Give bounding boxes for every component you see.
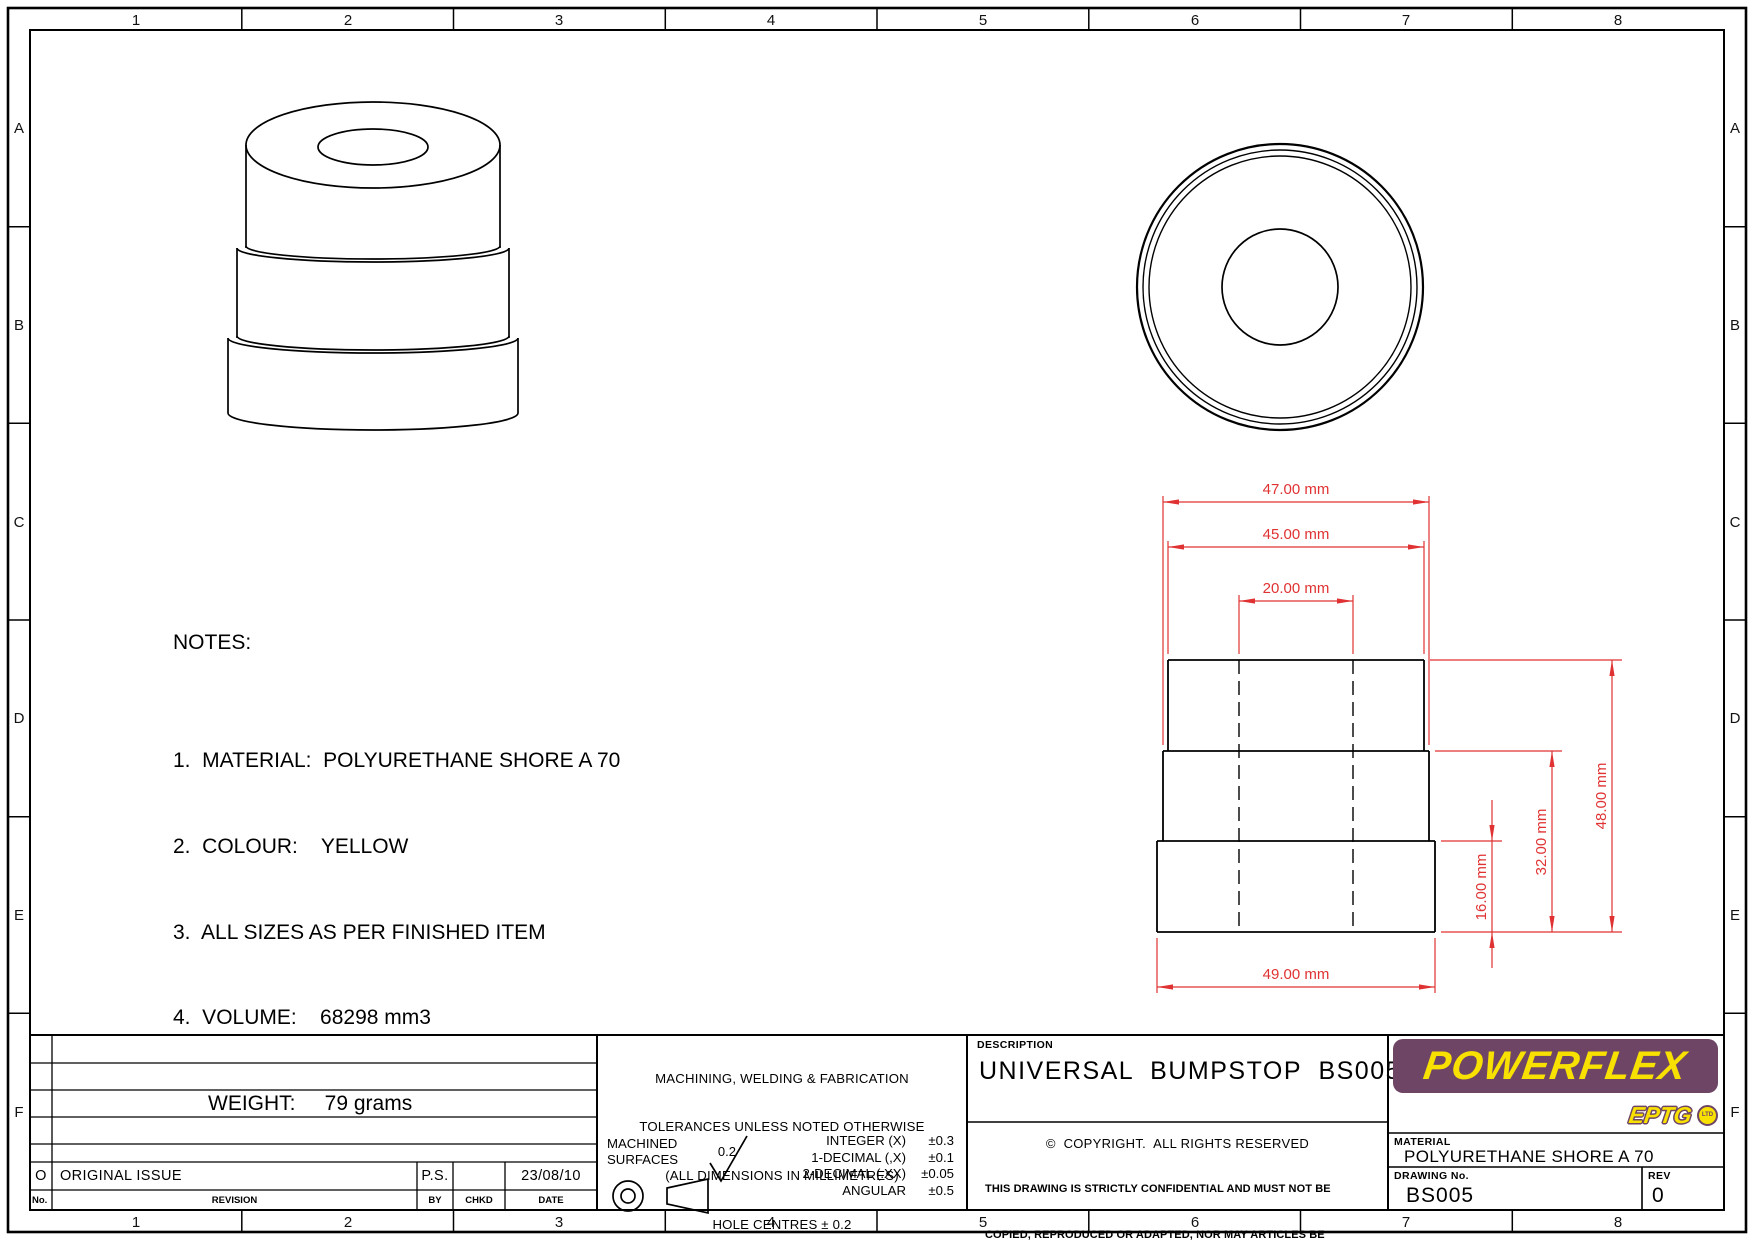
tolerance-line: HOLE CENTRES ± 0.2: [599, 1217, 965, 1233]
tolerance-row-label: 2-DECIMAL (.XX): [754, 1166, 906, 1181]
machined-label-2: SURFACES: [607, 1152, 678, 1167]
grid-col-label: 3: [555, 12, 563, 29]
top-view: [1137, 144, 1423, 430]
note-line: 3. ALL SIZES AS PER FINISHED ITEM: [173, 919, 620, 948]
dim-20: 20.00 mm: [1263, 580, 1330, 597]
tolerance-row: ANGULAR ±0.5: [754, 1183, 954, 1198]
top-view-hole: [1222, 229, 1338, 345]
copyright-heading: © COPYRIGHT. ALL RIGHTS RESERVED: [967, 1136, 1388, 1151]
tolerance-row-value: ±0.05: [906, 1166, 954, 1181]
machined-label-1: MACHINED: [607, 1136, 677, 1151]
grid-row-label: E: [14, 907, 24, 924]
description-label: DESCRIPTION: [977, 1039, 1053, 1051]
note-line: WEIGHT: 79 grams: [173, 1090, 620, 1119]
notes-title: NOTES:: [173, 629, 620, 658]
note-line: 2. COLOUR: YELLOW: [173, 833, 620, 862]
grid-row-label: B: [1730, 317, 1740, 334]
grid-col-label: 7: [1402, 12, 1410, 29]
grid-row-label: D: [1730, 710, 1741, 727]
tolerance-row: 2-DECIMAL (.XX) ±0.05: [754, 1166, 954, 1181]
grid-row-label: F: [14, 1104, 23, 1121]
grid-row-label: C: [14, 514, 25, 531]
grid-row-label: E: [1730, 907, 1740, 924]
grid-row-label: A: [14, 120, 24, 137]
grid-col-label: 2: [344, 12, 352, 29]
dim-47: 47.00 mm: [1263, 481, 1330, 498]
copyright-line: COPIED, REPRODUCED OR ADAPTED, NOR MAY A…: [985, 1228, 1346, 1240]
tolerance-row-value: ±0.5: [906, 1183, 954, 1198]
note-line: 1. MATERIAL: POLYURETHANE SHORE A 70: [173, 747, 620, 776]
eptg-ltd-badge: LTD: [1697, 1105, 1718, 1126]
revision-entry-date: 23/08/10: [505, 1168, 597, 1184]
front-view-hole: [318, 129, 428, 165]
dim-48: 48.00 mm: [1593, 763, 1610, 830]
grid-col-label: 1: [132, 1214, 140, 1231]
dim-16: 16.00 mm: [1473, 854, 1490, 921]
tolerance-row: 1-DECIMAL (,X) ±0.1: [754, 1150, 954, 1165]
grid-col-label: 4: [767, 12, 775, 29]
dim-45: 45.00 mm: [1263, 526, 1330, 543]
revision-entry-text: ORIGINAL ISSUE: [60, 1168, 182, 1184]
revision-entry-no: O: [30, 1168, 52, 1184]
copyright-body: THIS DRAWING IS STRICTLY CONFIDENTIAL AN…: [985, 1152, 1346, 1240]
tolerance-row-label: ANGULAR: [754, 1183, 906, 1198]
front-view: [228, 102, 518, 430]
grid-col-label: 2: [344, 1214, 352, 1231]
dim-32: 32.00 mm: [1533, 809, 1550, 876]
rev-label: REV: [1648, 1170, 1671, 1182]
dimension-arrows: [1157, 499, 1615, 989]
drawing-no-value: BS005: [1406, 1184, 1474, 1208]
grid-col-label: 8: [1614, 12, 1622, 29]
eptg-logo: EPTG LTD: [1556, 1100, 1718, 1130]
powerflex-logo: POWERFLEX: [1393, 1039, 1718, 1093]
material-value: POLYURETHANE SHORE A 70: [1404, 1147, 1654, 1167]
tolerance-row: INTEGER (X) ±0.3: [754, 1133, 954, 1148]
hidden-hole-lines: [1239, 660, 1353, 932]
copyright-line: THIS DRAWING IS STRICTLY CONFIDENTIAL AN…: [985, 1182, 1346, 1197]
grid-row-label: C: [1730, 514, 1741, 531]
grid-col-label: 6: [1191, 12, 1199, 29]
tolerance-row-label: INTEGER (X): [754, 1133, 906, 1148]
revision-header-by: BY: [417, 1195, 453, 1206]
tolerance-row-value: ±0.1: [906, 1150, 954, 1165]
powerflex-logo-text: POWERFLEX: [1422, 1046, 1690, 1086]
grid-row-label: F: [1730, 1104, 1739, 1121]
drawing-no-label: DRAWING No.: [1394, 1170, 1469, 1182]
grid-row-label: A: [1730, 120, 1740, 137]
tolerance-row-value: ±0.3: [906, 1133, 954, 1148]
grid-col-label: 1: [132, 12, 140, 29]
grid-col-label: 5: [979, 12, 987, 29]
grid-col-label: 3: [555, 1214, 563, 1231]
grid-row-label: B: [14, 317, 24, 334]
revision-header-no: No.: [32, 1195, 47, 1206]
rev-value: 0: [1652, 1184, 1665, 1208]
description-value: UNIVERSAL BUMPSTOP BS005: [979, 1057, 1401, 1086]
tolerance-row-label: 1-DECIMAL (,X): [754, 1150, 906, 1165]
drawing-sheet: 1 2 3 4 5 6 7 8 1 2 3 4 5 6 7 8 A B C D …: [0, 0, 1754, 1240]
dimension-labels: 47.00 mm 45.00 mm 20.00 mm 49.00 mm 16.0…: [1263, 481, 1610, 983]
notes-block: NOTES: 1. MATERIAL: POLYURETHANE SHORE A…: [173, 572, 620, 1176]
grid-col-label: 7: [1402, 1214, 1410, 1231]
grid-col-label: 8: [1614, 1214, 1622, 1231]
revision-header-date: DATE: [505, 1195, 597, 1206]
revision-header-chkd: CHKD: [453, 1195, 505, 1206]
tolerance-line: MACHINING, WELDING & FABRICATION: [599, 1071, 965, 1087]
grid-row-label: D: [14, 710, 25, 727]
note-line: 4. VOLUME: 68298 mm3: [173, 1004, 620, 1033]
eptg-logo-text: EPTG: [1628, 1104, 1694, 1127]
side-view: [1157, 660, 1435, 932]
revision-entry-by: P.S.: [417, 1168, 453, 1184]
revision-header-revision: REVISION: [52, 1195, 417, 1206]
dim-49: 49.00 mm: [1263, 966, 1330, 983]
